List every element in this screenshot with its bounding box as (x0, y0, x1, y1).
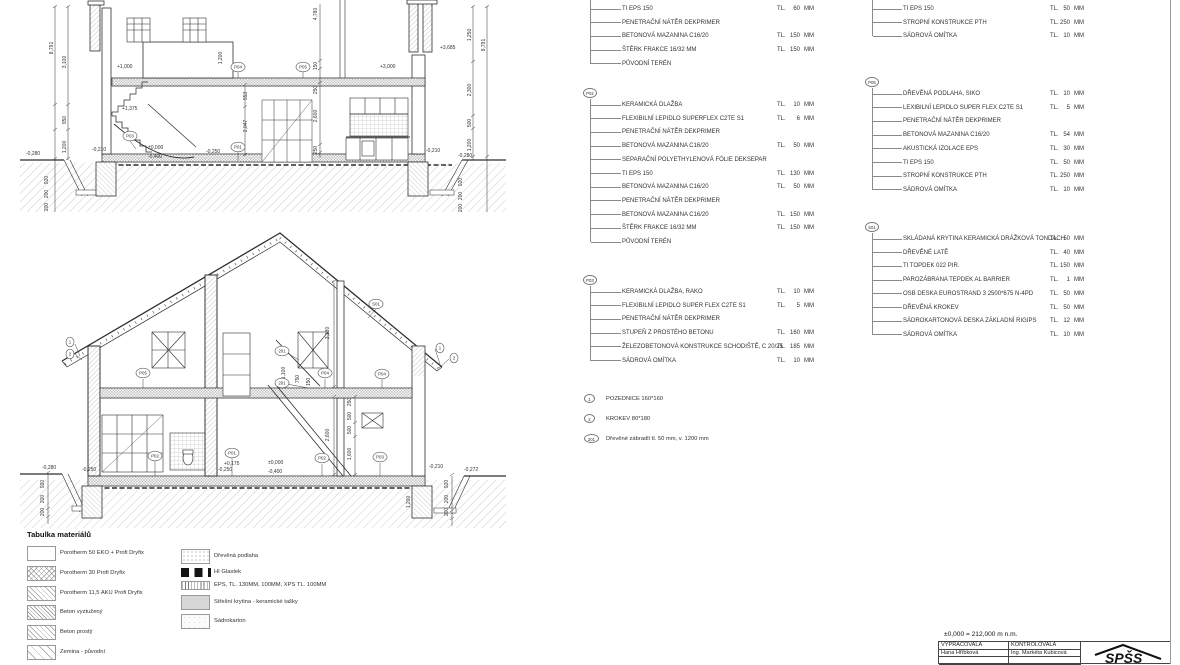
legend-material-name: PŮVODNÍ TERÉN (622, 237, 671, 247)
legend-material-name: PENETRAČNÍ NÁTĚR DEKPRIMER (903, 116, 1001, 126)
legend-material-name: PENETRAČNÍ NÁTĚR DEKPRIMER (622, 196, 720, 206)
legend-material-name: TI EPS 150 (903, 4, 934, 14)
legend-row: PENETRAČNÍ NÁTĚR DEKPRIMER (590, 18, 826, 28)
legend-material-name: BETONOVÁ MAZANINA C16/20 (622, 210, 709, 220)
legend-thickness-value: 160 (780, 328, 800, 338)
notes-list: 1POZEDNICE 160*1602KROKEV 80*180201Dřevě… (584, 394, 884, 454)
legend-leader-line (873, 162, 902, 163)
material-label: Porotherm 30 Profi Dryfix (60, 570, 125, 576)
legend-leader-line (591, 305, 621, 306)
legend-leader-line (873, 239, 902, 240)
legend-material-name: SÁDROVÁ OMÍTKA (903, 330, 957, 340)
legend-row: TI EPS 150TL.60MM (590, 4, 826, 14)
legend-leader-line (873, 176, 902, 177)
legend-material-name: BETONOVÁ MAZANINA C16/20 (622, 141, 709, 151)
svg-text:SPŠS: SPŠS (1105, 649, 1143, 665)
legend-thickness-value: 10 (780, 356, 800, 366)
legend-leader-line (591, 292, 621, 293)
legend-thickness-unit: MM (804, 210, 814, 220)
legend-row: BETONOVÁ MAZANINA C16/20TL.150MM (590, 31, 826, 41)
legend-leader-line (873, 135, 902, 136)
diag-wide-swatch (27, 645, 56, 660)
legend-material-name: LEXIBILNÍ LEPIDLO SUPER FLEX C2TE S1 (903, 103, 1023, 113)
legend-row: LEXIBILNÍ LEPIDLO SUPER FLEX C2TE S1TL.5… (872, 103, 1108, 113)
legend-leader-line (873, 36, 902, 37)
legend-row: DŘEVĚNÁ PODLAHA, SIKOTL.10MM (872, 89, 1108, 99)
legend-thickness-unit: MM (804, 182, 814, 192)
legend-material-name: ŠTĚRK FRAKCE 16/32 MM (622, 45, 696, 55)
legend-thickness-value: 50 (780, 182, 800, 192)
legend-thickness-unit: MM (804, 141, 814, 151)
datum-elevation-note: ±0,000 = 212,000 m n.m. (944, 631, 1017, 638)
legend-leader-line (873, 107, 902, 108)
sheet-border-line (1170, 0, 1171, 664)
checked-by-header: KONTROLOVALA (1009, 642, 1081, 650)
legend-thickness-unit: MM (1074, 31, 1084, 41)
legend-leader-line (873, 334, 902, 335)
legend-leader-line (591, 173, 621, 174)
legend-row: BETONOVÁ MAZANINA C16/20TL.150MM (590, 210, 826, 220)
legend-thickness-unit: MM (1074, 89, 1084, 99)
diag-dense-swatch (27, 605, 56, 620)
legend-leader-line (591, 36, 621, 37)
legend-thickness-unit: MM (1074, 330, 1084, 340)
legend-row: PŮVODNÍ TERÉN (590, 237, 826, 247)
legend-thickness-value: 1 (1052, 275, 1070, 285)
legend-row: BETONOVÁ MAZANINA C16/20TL.50MM (590, 182, 826, 192)
note-text: POZEDNICE 160*160 (606, 394, 663, 405)
legend-row: SÁDROVÁ OMÍTKATL.10MM (872, 31, 1108, 41)
legend-thickness-value: 5 (780, 301, 800, 311)
legend-material-name: TI TOPDEK 022 PIR. (903, 261, 959, 271)
title-block-table: VYPRACOVALA KONTROLOVALA SPŠS Hana Hříbk… (938, 641, 1171, 664)
legend-thickness-unit: MM (804, 301, 814, 311)
legend-material-name: PŮVODNÍ TERÉN (622, 59, 671, 69)
legend-row: FLEXIBILNÍ LEPIDLO SUPERFLEX C2TE S1TL.6… (590, 114, 826, 124)
legend-leader-line (591, 118, 621, 119)
legend-row: DŘEVĚNÁ KROKEVTL.50MM (872, 303, 1108, 313)
legend-material-name: FLEXIBILNÍ LEPIDLO SUPER FLEX C2TE S1 (622, 301, 746, 311)
legend-thickness-value: 150 (780, 45, 800, 55)
material-label: Dřevěná podlaha (214, 553, 258, 559)
legend-leader-line (591, 214, 621, 215)
legend-leader-line (591, 132, 621, 133)
legend-thickness-value: 50 (1052, 158, 1070, 168)
legend-material-name: SEPARAČNÍ POLYETHYLENOVÁ FÓLIE DEKSEPAR (622, 155, 767, 165)
legend-thickness-value: 40 (1052, 248, 1070, 258)
material-row: Sádrokarton (181, 614, 401, 630)
legend-row: PENETRAČNÍ NÁTĚR DEKPRIMER (590, 127, 826, 137)
legend-thickness-unit: MM (804, 31, 814, 41)
legend-thickness-unit: MM (1074, 289, 1084, 299)
legend-row: SÁDROVÁ OMÍTKATL.10MM (872, 330, 1108, 340)
legend-row: DŘEVĚNÉ LATĚTL.40MM (872, 248, 1108, 258)
legend-material-name: PENETRAČNÍ NÁTĚR DEKPRIMER (622, 127, 720, 137)
legend-material-name: KERAMICKÁ DLAŽBA, RAKO (622, 287, 703, 297)
legend-material-name: SÁDROKARTONOVÁ DESKA ZÁKLADNÍ RIGIPS (903, 316, 1036, 326)
legend-thickness-unit: MM (1074, 234, 1084, 244)
legend-material-name: OSB DESKA EUROSTRAND 3 2500*675 N-4PD (903, 289, 1033, 299)
legend-leader-line (591, 200, 621, 201)
legend-material-name: ŽELEZOBETONOVÁ KONSTRUKCE SCHODIŠTĚ, C 2… (622, 342, 783, 352)
legend-thickness-unit: MM (804, 114, 814, 124)
legend-material-name: TI EPS 150 (622, 169, 653, 179)
legend-leader-line (591, 22, 621, 23)
legend-leader-line (873, 307, 902, 308)
legend-material-name: BETONOVÁ MAZANINA C16/20 (622, 182, 709, 192)
legend-thickness-unit: MM (1074, 144, 1084, 154)
material-label: Porotherm 11,5 AKU Profi Dryfix (60, 590, 143, 596)
legend-leader-line (591, 333, 621, 334)
plaster-swatch (181, 614, 210, 629)
legend-thickness-unit: MM (1074, 18, 1084, 28)
material-label: Beton prostý (60, 629, 93, 635)
material-label: Beton vyztužený (60, 609, 103, 615)
legend-thickness-value: 50 (1052, 4, 1070, 14)
legend-leader-line (873, 266, 902, 267)
legend-row: TI EPS 150TL.130MM (590, 169, 826, 179)
legend-material-name: DŘEVĚNÉ LATĚ (903, 248, 948, 258)
legend-row: ŠTĚRK FRAKCE 16/32 MMTL.150MM (590, 45, 826, 55)
diag-swatch (27, 625, 56, 640)
legend-row: KERAMICKÁ DLAŽBA, RAKOTL.10MM (590, 287, 826, 297)
legend-material-name: SÁDROVÁ OMÍTKA (903, 31, 957, 41)
note-text: KROKEV 80*180 (606, 414, 650, 425)
legend-row: SEPARAČNÍ POLYETHYLENOVÁ FÓLIE DEKSEPAR (590, 155, 826, 165)
legend-thickness-value: 50 (780, 141, 800, 151)
legend-leader-line (873, 148, 902, 149)
legend-thickness-unit: MM (1074, 130, 1084, 140)
legend-row: TI TOPDEK 022 PIR.TL.150MM (872, 261, 1108, 271)
legend-leader-line (873, 280, 902, 281)
legend-row: ŽELEZOBETONOVÁ KONSTRUKCE SCHODIŠTĚ, C 2… (590, 342, 826, 352)
legend-thickness-unit: MM (1074, 4, 1084, 14)
material-row: Beton vyztužený (27, 605, 177, 621)
spss-logo-icon: SPŠS (1089, 643, 1167, 665)
company-logo: SPŠS (1081, 642, 1172, 665)
legend-material-name: SKLÁDANÁ KRYTINA KERAMICKÁ DRÁŽKOVÁ TOND… (903, 234, 1065, 244)
stipple-swatch (181, 549, 210, 564)
legend-block-label: P02 (583, 88, 597, 98)
legend-thickness-unit: MM (1074, 316, 1084, 326)
legend-thickness-value: 150 (780, 31, 800, 41)
note-id-badge: 1 (584, 394, 595, 403)
legend-material-name: STROPNÍ KONSTRUKCE PTH (903, 171, 987, 181)
legend-thickness-value: 5 (1052, 103, 1070, 113)
legend-leader-line (591, 228, 621, 229)
legend-thickness-value: 50 (1052, 234, 1070, 244)
legend-material-name: PENETRAČNÍ NÁTĚR DEKPRIMER (622, 18, 720, 28)
legend-thickness-value: 10 (1052, 89, 1070, 99)
legend-leader-line (591, 159, 621, 160)
legend-leader-line (873, 189, 902, 190)
legend-material-name: KERAMICKÁ DLAŽBA (622, 100, 682, 110)
legend-leader-line (873, 22, 902, 23)
legend-thickness-value: 150 (780, 210, 800, 220)
legend-material-name: PAROZÁBRANA TEPDEK AL BARRIER (903, 275, 1010, 285)
legend-material-name: DŘEVĚNÁ PODLAHA, SIKO (903, 89, 980, 99)
legend-leader-line (873, 9, 902, 10)
legend-row: STUPEŇ Z PROSTÉHO BETONUTL.160MM (590, 328, 826, 338)
legend-thickness-unit: MM (804, 100, 814, 110)
legend-leader-line (873, 321, 902, 322)
material-label: Porotherm 50 EKO + Profi Dryfix (60, 550, 144, 556)
materials-table: Tabulka materiálů Porotherm 50 EKO + Pro… (27, 530, 427, 664)
material-row: Zemina - původní (27, 645, 177, 661)
legend-leader-line (591, 360, 621, 361)
legend-thickness-value: 10 (780, 287, 800, 297)
legend-thickness-value: 10 (1052, 31, 1070, 41)
legend-row: AKUSTICKÁ IZOLACE EPSTL.30MM (872, 144, 1108, 154)
legend-thickness-value: 30 (1052, 144, 1070, 154)
legend-material-name: FLEXIBILNÍ LEPIDLO SUPERFLEX C2TE S1 (622, 114, 744, 124)
legend-row: FLEXIBILNÍ LEPIDLO SUPER FLEX C2TE S1TL.… (590, 301, 826, 311)
legend-thickness-value: 150 (780, 223, 800, 233)
legend-thickness-unit: MM (1074, 275, 1084, 285)
legend-block-label: P03 (583, 275, 597, 285)
material-row: Porotherm 11,5 AKU Profi Dryfix (27, 586, 177, 602)
legend-thickness-value: 60 (780, 4, 800, 14)
legend-row: KERAMICKÁ DLAŽBATL.10MM (590, 100, 826, 110)
legend-row: SÁDROKARTONOVÁ DESKA ZÁKLADNÍ RIGIPSTL.1… (872, 316, 1108, 326)
material-row: EPS, TL. 130MM, 100MM, XPS TL. 100MM (181, 578, 401, 594)
legend-material-name: STUPEŇ Z PROSTÉHO BETONU (622, 328, 714, 338)
legend-material-name: PENETRAČNÍ NÁTĚR DEKPRIMER (622, 314, 720, 324)
glastek-swatch (181, 568, 211, 577)
legend-thickness-unit: MM (804, 287, 814, 297)
legend-leader-line (873, 293, 902, 294)
legend-row: ŠTĚRK FRAKCE 16/32 MMTL.150MM (590, 223, 826, 233)
material-row: Dřevěná podlaha (181, 549, 401, 565)
legend-material-name: TI EPS 150 (903, 158, 934, 168)
legend-thickness-unit: MM (1074, 103, 1084, 113)
legend-row: STROPNÍ KONSTRUKCE PTHTL.250MM (872, 171, 1108, 181)
legend-thickness-unit: MM (1074, 171, 1084, 181)
legend-block-label: S01 (865, 222, 879, 232)
legend-leader-line (591, 346, 621, 347)
made-by-header: VYPRACOVALA (939, 642, 1009, 650)
legend-thickness-value: 10 (780, 100, 800, 110)
legend-material-name: SÁDROVÁ OMÍTKA (622, 356, 676, 366)
title-block: ±0,000 = 212,000 m n.m. VYPRACOVALA KONT… (938, 631, 1172, 664)
legend-leader-line (591, 242, 621, 243)
material-label: Střešní krytina - keramické tašky (214, 599, 298, 605)
legend-row: PENETRAČNÍ NÁTĚR DEKPRIMER (590, 196, 826, 206)
material-label: Zemina - původní (60, 649, 105, 655)
empty-swatch (27, 546, 56, 561)
legend-material-name: TI EPS 150 (622, 4, 653, 14)
legend-leader-line (873, 94, 902, 95)
legend-thickness-value: 130 (780, 169, 800, 179)
note-id-badge: 2 (584, 414, 595, 423)
materials-table-title: Tabulka materiálů (27, 530, 91, 539)
legend-thickness-unit: MM (1074, 185, 1084, 195)
legend-material-name: STROPNÍ KONSTRUKCE PTH (903, 18, 987, 28)
legend-thickness-unit: MM (804, 4, 814, 14)
legend-row: PENETRAČNÍ NÁTĚR DEKPRIMER (872, 116, 1108, 126)
legend-thickness-unit: MM (804, 342, 814, 352)
drawing-sheet: { "legend": { "columns": [ { "id": "col1… (0, 0, 1180, 664)
legend-thickness-value: 12 (1052, 316, 1070, 326)
dim-label: 200 (40, 508, 46, 517)
legend-thickness-unit: MM (804, 328, 814, 338)
legend-leader-line (591, 187, 621, 188)
material-row: Beton prostý (27, 625, 177, 641)
legend-leader-line (873, 121, 902, 122)
legend-material-name: BETONOVÁ MAZANINA C16/20 (903, 130, 990, 140)
legend-leader-line (873, 252, 902, 253)
legend-thickness-value: 10 (1052, 330, 1070, 340)
legend-thickness-unit: MM (804, 356, 814, 366)
legend-material-name: AKUSTICKÁ IZOLACE EPS (903, 144, 978, 154)
eps-swatch (181, 581, 210, 590)
legend-thickness-unit: MM (1074, 303, 1084, 313)
gray-swatch (181, 595, 210, 610)
legend-row: STROPNÍ KONSTRUKCE PTHTL.250MM (872, 18, 1108, 28)
legend-thickness-value: 50 (1052, 289, 1070, 299)
material-label: HI Glastek (214, 569, 241, 575)
legend-thickness-value: 185 (780, 342, 800, 352)
legend-leader-line (591, 146, 621, 147)
legend-row: PENETRAČNÍ NÁTĚR DEKPRIMER (590, 314, 826, 324)
legend-leader-line (591, 319, 621, 320)
legend-thickness-value: 6 (780, 114, 800, 124)
legend-leader-line (591, 63, 621, 64)
legend-thickness-value: 50 (1052, 303, 1070, 313)
legend-thickness-value: 250 (1052, 18, 1070, 28)
legend-row: OSB DESKA EUROSTRAND 3 2500*675 N-4PDTL.… (872, 289, 1108, 299)
legend-thickness-value: 250 (1052, 171, 1070, 181)
legend-leader-line (591, 9, 621, 10)
legend-row: PAROZÁBRANA TEPDEK AL BARRIERTL.1MM (872, 275, 1108, 285)
legend-thickness-unit: MM (804, 169, 814, 179)
legend-row: SÁDROVÁ OMÍTKATL.10MM (590, 356, 826, 366)
note-id-badge: 201 (584, 434, 599, 443)
legend-row: PŮVODNÍ TERÉN (590, 59, 826, 69)
checked-by-name: Ing. Markéta Kubicová (1009, 650, 1081, 658)
legend-row: BETONOVÁ MAZANINA C16/20TL.54MM (872, 130, 1108, 140)
legend-row: BETONOVÁ MAZANINA C16/20TL.50MM (590, 141, 826, 151)
legend-thickness-unit: MM (804, 223, 814, 233)
legend-thickness-unit: MM (1074, 158, 1084, 168)
legend-material-name: ŠTĚRK FRAKCE 16/32 MM (622, 223, 696, 233)
legend-thickness-value: 10 (1052, 185, 1070, 195)
legend-thickness-unit: MM (1074, 261, 1084, 271)
legend-block-label: P05 (865, 77, 879, 87)
legend-thickness-unit: MM (804, 45, 814, 55)
legend-thickness-unit: MM (1074, 248, 1084, 258)
legend-thickness-value: 54 (1052, 130, 1070, 140)
legend-material-name: SÁDROVÁ OMÍTKA (903, 185, 957, 195)
material-row: Střešní krytina - keramické tašky (181, 595, 401, 611)
material-label: Sádrokarton (214, 618, 246, 624)
dim-label: 200 (444, 508, 450, 517)
legend-material-name: DŘEVĚNÁ KROKEV (903, 303, 959, 313)
made-by-name: Hana Hříbková (939, 650, 1009, 658)
cross-swatch (27, 566, 56, 581)
legend-row: SKLÁDANÁ KRYTINA KERAMICKÁ DRÁŽKOVÁ TOND… (872, 234, 1108, 244)
material-row: Porotherm 30 Profi Dryfix (27, 566, 177, 582)
note-text: Dřevěné zábradlí tl. 50 mm, v. 1200 mm (606, 434, 709, 445)
legend-material-name: BETONOVÁ MAZANINA C16/20 (622, 31, 709, 41)
legend-leader-line (591, 50, 621, 51)
legend-thickness-value: 150 (1052, 261, 1070, 271)
legend-row: TI EPS 150TL.50MM (872, 4, 1108, 14)
legend-row: TI EPS 150TL.50MM (872, 158, 1108, 168)
material-row: Porotherm 50 EKO + Profi Dryfix (27, 546, 177, 562)
legend-row: SÁDROVÁ OMÍTKATL.10MM (872, 185, 1108, 195)
diag-swatch (27, 586, 56, 601)
material-label: EPS, TL. 130MM, 100MM, XPS TL. 100MM (214, 582, 326, 588)
legend-leader-line (591, 105, 621, 106)
